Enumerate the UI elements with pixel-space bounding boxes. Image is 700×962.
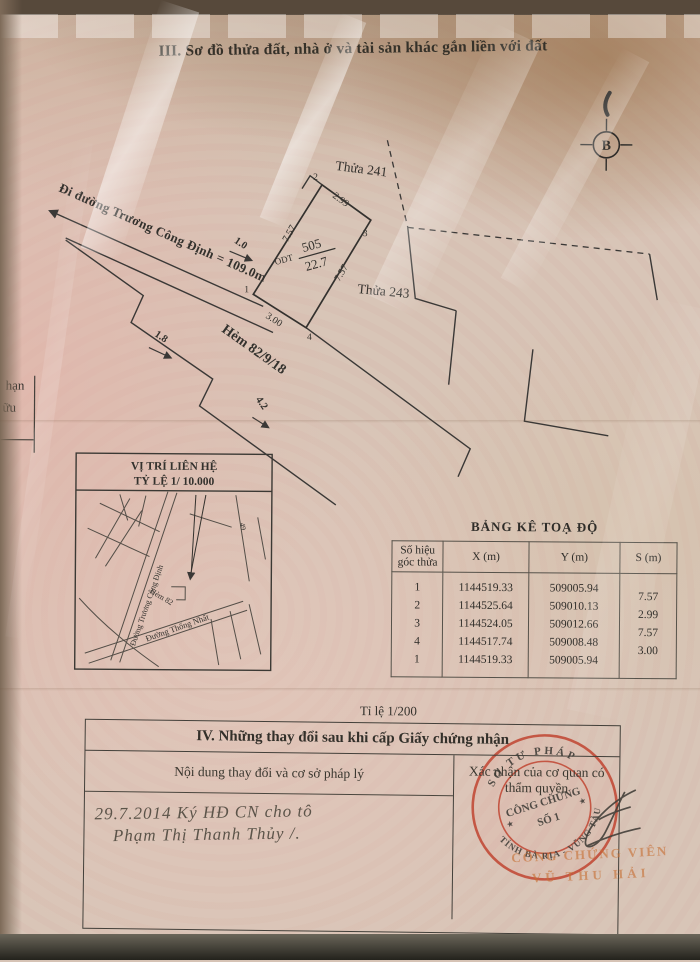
book-spine-shadow — [0, 0, 22, 960]
corner-id: 1 — [392, 650, 442, 668]
s-value: 3.00 — [620, 642, 676, 660]
s-value: 2.99 — [620, 606, 676, 624]
dim-1-0: 1.0 — [232, 236, 249, 252]
col-header-x: X (m) — [443, 541, 529, 573]
plot-type: ODT — [274, 252, 295, 267]
s-value: 7.57 — [620, 624, 676, 642]
y-value: 509012.66 — [529, 615, 619, 634]
minimap-title2: TỶ LỆ 1/ 10.000 — [134, 473, 215, 488]
corner-id: 3 — [392, 614, 442, 632]
y-value: 509005.94 — [528, 651, 618, 670]
minimap-pointer — [190, 495, 206, 579]
corner-3: 3 — [363, 229, 368, 239]
alley-label: Hẻm 82/9/18 — [219, 322, 289, 378]
section4-right-column: Xác nhận của cơ quan có thẩm quyền — [452, 755, 619, 921]
document-page: III. Sơ đồ thửa đất, nhà ở và tài sản kh… — [0, 0, 700, 962]
section4-right-header: Xác nhận của cơ quan có thẩm quyền — [454, 755, 620, 805]
x-value: 1144525.64 — [443, 597, 528, 616]
minimap-roads — [79, 491, 266, 667]
s-value: 7.57 — [620, 588, 676, 606]
handwriting-line-2: Phạm Thị Thanh Thủy /. — [113, 822, 447, 847]
coordinate-table: BẢNG KÊ TOẠ ĐỘ Số hiệu góc thửa X (m) Y … — [391, 518, 678, 679]
tape-glare — [0, 14, 700, 38]
coordinate-table-title: BẢNG KÊ TOẠ ĐỘ — [392, 518, 678, 536]
col-header-s: S (m) — [620, 542, 677, 573]
x-value: 1144524.05 — [443, 615, 528, 634]
dim-1-8: 1.8 — [152, 329, 169, 345]
minimap-street-bottom: Đường Thống Nhất — [144, 612, 211, 644]
minimap-street-num: 49 — [238, 522, 248, 531]
plot-number: 505 — [300, 235, 323, 255]
corner-1: 1 — [244, 285, 249, 295]
handwriting-area: 29.7.2014 Ký HĐ CN cho tô Phạm Thị Thanh… — [84, 791, 453, 846]
corner-2: 2 — [313, 173, 318, 183]
scale-note: Tỉ lệ 1/200 — [298, 703, 478, 720]
north-label: B — [602, 139, 611, 154]
neighbor-top-label: Thửa 241 — [335, 158, 388, 180]
photo-bottom-edge — [0, 934, 700, 960]
dim-right: 7.57 — [332, 263, 350, 284]
corner-id-column: 1 2 3 4 1 — [391, 572, 443, 677]
north-symbol: B — [580, 93, 633, 171]
corner-4: 4 — [307, 333, 312, 343]
dim-4-2-arrow — [252, 417, 268, 427]
dim-4-2: 4.2 — [253, 395, 270, 412]
col-header-corner: Số hiệu góc thửa — [392, 541, 444, 572]
minimap: VỊ TRÍ LIÊN HỆ TỶ LỆ 1/ 10.000 — [75, 453, 273, 670]
photo-top-edge — [0, 0, 700, 15]
section4-box: IV. Những thay đổi sau khi cấp Giấy chứn… — [82, 719, 621, 936]
y-column: 509005.94 509010.13 509012.66 509008.48 … — [528, 573, 620, 679]
north-arrow-icon — [605, 93, 610, 115]
section4-left-header: Nội dung thay đổi và cơ sở pháp lý — [85, 751, 453, 796]
dim-bottom: 3.00 — [263, 311, 284, 330]
street-label: Đi đường Trương Công Định = 109.0m — [57, 180, 269, 285]
col-header-y: Y (m) — [529, 542, 620, 574]
corner-id: 2 — [392, 596, 442, 614]
dim-1-8-arrow — [149, 348, 171, 358]
x-value: 1144519.33 — [443, 651, 528, 670]
minimap-title1: VỊ TRÍ LIÊN HỆ — [131, 458, 218, 473]
y-value: 509008.48 — [529, 633, 619, 652]
x-column: 1144519.33 1144525.64 1144524.05 1144517… — [442, 572, 528, 678]
y-value: 509005.94 — [529, 579, 619, 598]
x-value: 1144517.74 — [443, 633, 528, 652]
neighbor-right-label: Thửa 243 — [357, 281, 410, 301]
s-column: 7.57 2.99 7.57 3.00 — [619, 573, 677, 678]
y-value: 509010.13 — [529, 597, 619, 616]
handwriting-line-1: 29.7.2014 Ký HĐ CN cho tô — [94, 800, 446, 825]
x-value: 1144519.33 — [443, 579, 528, 598]
corner-id: 1 — [392, 578, 442, 596]
section4-left-column: Nội dung thay đổi và cơ sở pháp lý 29.7.… — [83, 751, 454, 919]
corner-id: 4 — [392, 632, 442, 650]
